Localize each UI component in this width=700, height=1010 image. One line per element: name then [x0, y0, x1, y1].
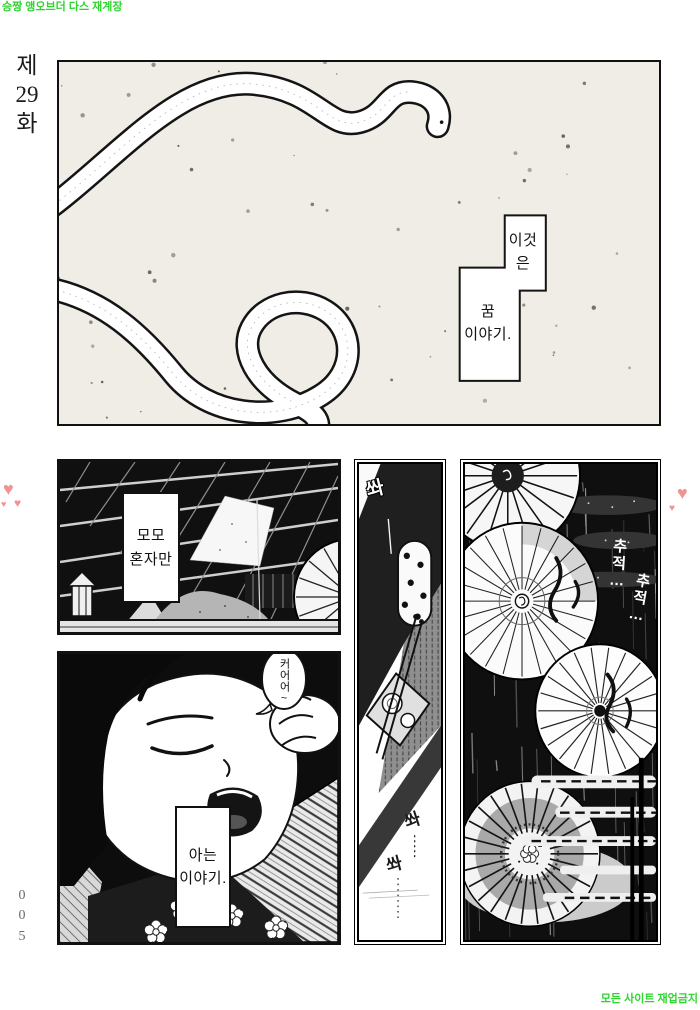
manga-page: 승짱 앵오브더 다스 재계장 모든 사이트 재업금지 제 29 화 0 0 5 … [0, 0, 700, 1010]
heart-icon: ♥ [669, 504, 675, 514]
attic-artwork [60, 462, 338, 632]
dream-caption-bottom: 꿈 이야기. [459, 268, 517, 378]
snore-bubble-text: 커어어~ [266, 655, 302, 707]
page-number: 0 0 5 [13, 886, 31, 947]
episode-label: 제 29 화 [6, 52, 48, 138]
attic-caption: 모모 혼자만 [122, 492, 180, 603]
sleep-caption: 아는 이야기. [175, 806, 231, 928]
heart-icon: ♥ [3, 480, 14, 498]
panel-attic [57, 459, 341, 635]
heart-icon: ♥ [14, 497, 21, 509]
heart-icon: ♥ [1, 500, 6, 509]
watermark-bottom-right: 모든 사이트 재업금지 [588, 994, 698, 1005]
heart-icon: ♥ [677, 484, 688, 502]
panel-rain [460, 459, 661, 945]
watermark-top-left: 승짱 앵오브더 다스 재계장 [2, 2, 123, 13]
panel-dream [57, 60, 661, 426]
rain-artwork [465, 464, 656, 940]
snake-artwork [59, 62, 659, 424]
